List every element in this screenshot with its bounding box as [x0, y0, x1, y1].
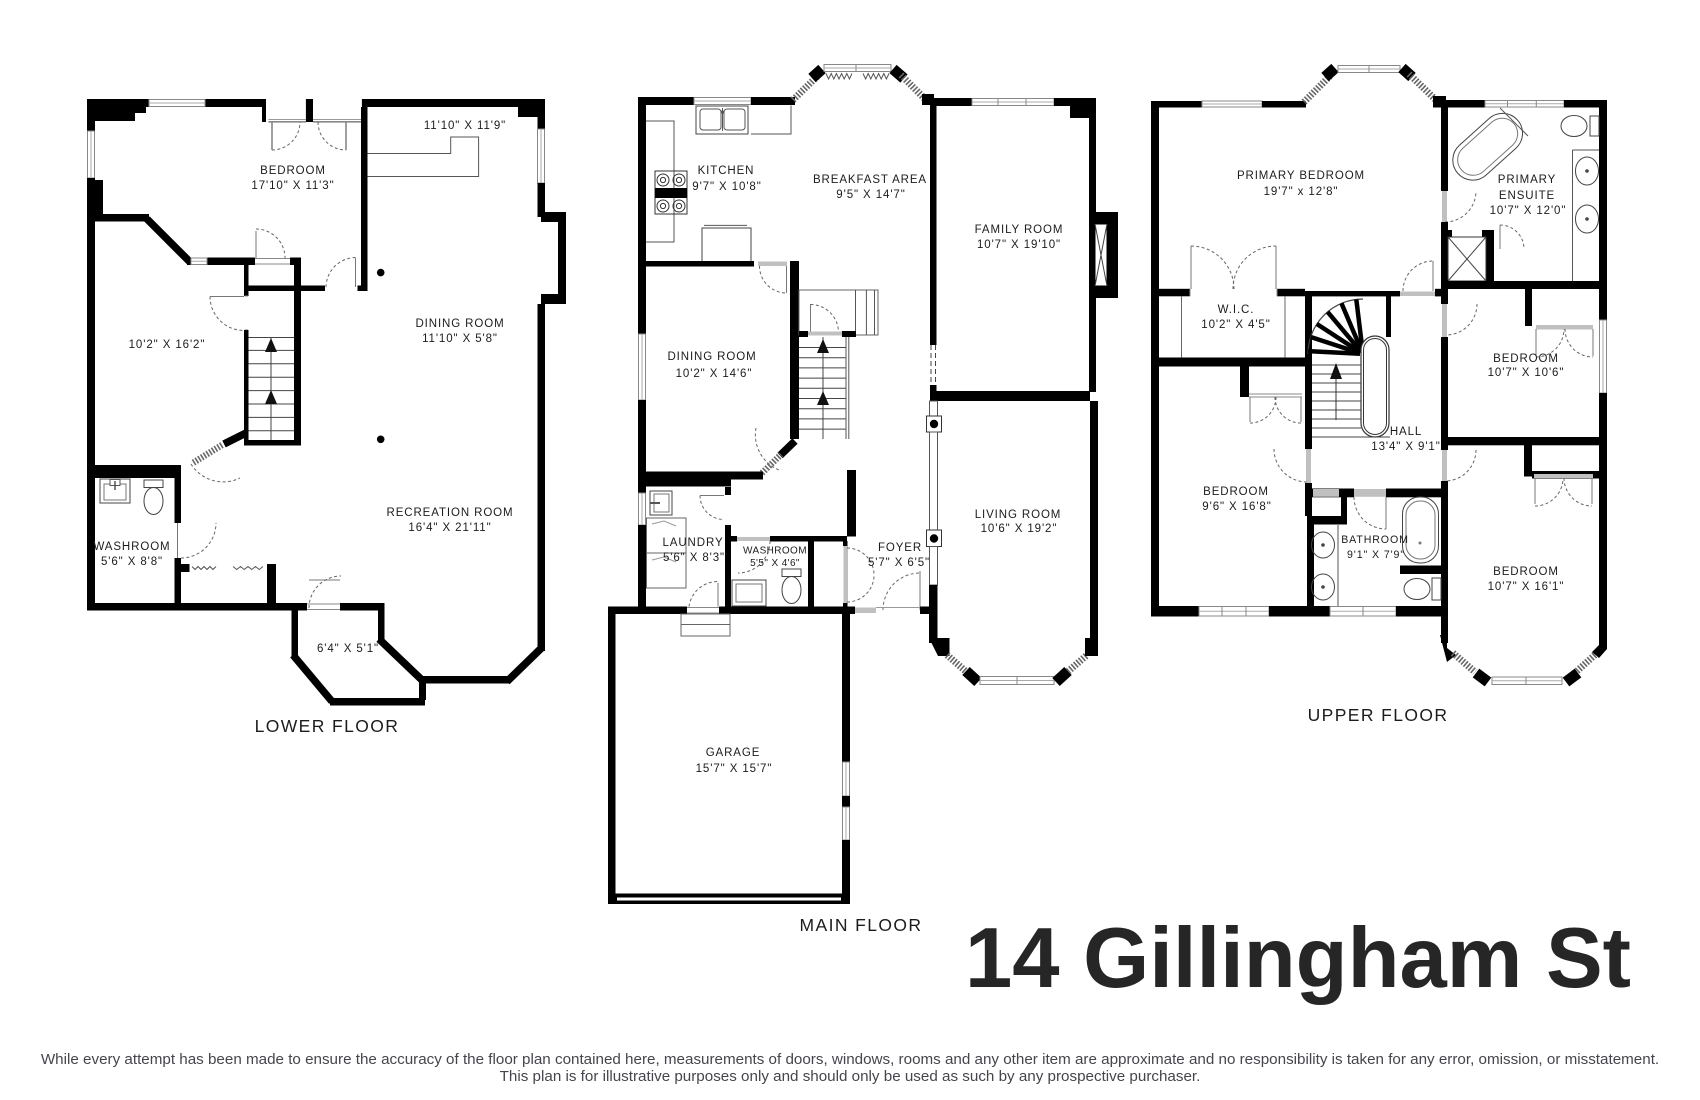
svg-text:RECREATION ROOM: RECREATION ROOM [386, 507, 513, 519]
svg-text:FAMILY ROOM: FAMILY ROOM [975, 224, 1064, 236]
svg-text:UPPER FLOOR: UPPER FLOOR [1308, 705, 1449, 725]
svg-text:GARAGE: GARAGE [706, 747, 761, 759]
svg-text:5'6" X 8'8": 5'6" X 8'8" [101, 556, 163, 568]
svg-text:10'2" X 14'6": 10'2" X 14'6" [676, 368, 753, 380]
svg-text:10'7" X 10'6": 10'7" X 10'6" [1488, 367, 1565, 379]
svg-text:15'7" X 15'7": 15'7" X 15'7" [696, 763, 773, 775]
svg-text:ENSUITE: ENSUITE [1499, 190, 1555, 202]
svg-text:LOWER FLOOR: LOWER FLOOR [255, 716, 400, 736]
svg-text:FOYER: FOYER [878, 542, 922, 554]
svg-text:17'10" X 11'3": 17'10" X 11'3" [251, 180, 334, 192]
svg-text:BEDROOM: BEDROOM [1203, 486, 1269, 498]
svg-text:5'6" X 8'3": 5'6" X 8'3" [663, 552, 725, 564]
svg-text:6'4" X 5'1": 6'4" X 5'1" [317, 643, 379, 655]
svg-text:BEDROOM: BEDROOM [1493, 566, 1559, 578]
svg-text:PRIMARY BEDROOM: PRIMARY BEDROOM [1237, 170, 1365, 182]
svg-text:DINING ROOM: DINING ROOM [415, 318, 504, 330]
svg-text:BATHROOM: BATHROOM [1341, 534, 1409, 546]
svg-text:DINING ROOM: DINING ROOM [667, 351, 756, 363]
svg-text:19'7" x 12'8": 19'7" x 12'8" [1264, 186, 1339, 198]
svg-text:While every attempt has been m: While every attempt has been made to ens… [41, 1051, 1659, 1068]
svg-text:10'7" X 12'0": 10'7" X 12'0" [1490, 205, 1567, 217]
svg-text:PRIMARY: PRIMARY [1498, 174, 1557, 186]
svg-text:MAIN FLOOR: MAIN FLOOR [800, 915, 923, 935]
svg-text:BEDROOM: BEDROOM [260, 165, 326, 177]
svg-text:WASHROOM: WASHROOM [743, 546, 807, 557]
svg-text:LIVING ROOM: LIVING ROOM [975, 509, 1062, 521]
svg-text:5'7" X 6'5": 5'7" X 6'5" [868, 557, 930, 569]
svg-text:13'4" X 9'1": 13'4" X 9'1" [1371, 441, 1440, 453]
svg-text:10'7" X 19'10": 10'7" X 19'10" [977, 239, 1061, 251]
svg-text:16'4" X 21'11": 16'4" X 21'11" [408, 522, 491, 534]
svg-text:LAUNDRY: LAUNDRY [662, 537, 723, 549]
svg-text:5'5" X 4'6": 5'5" X 4'6" [750, 558, 800, 569]
svg-text:BREAKFAST AREA: BREAKFAST AREA [813, 174, 927, 186]
svg-text:10'7" X 16'1": 10'7" X 16'1" [1488, 581, 1565, 593]
svg-text:11'10" X 5'8": 11'10" X 5'8" [422, 333, 498, 345]
svg-text:9'1" X 7'9": 9'1" X 7'9" [1347, 549, 1405, 561]
svg-text:11'10" X 11'9": 11'10" X 11'9" [424, 120, 506, 132]
svg-text:This plan is for illustrative: This plan is for illustrative purposes o… [500, 1068, 1201, 1085]
svg-text:BEDROOM: BEDROOM [1493, 353, 1559, 365]
svg-text:WASHROOM: WASHROOM [93, 541, 170, 553]
svg-text:KITCHEN: KITCHEN [698, 165, 755, 177]
svg-text:10'6" X 19'2": 10'6" X 19'2" [981, 523, 1058, 535]
svg-text:9'6" X 16'8": 9'6" X 16'8" [1202, 501, 1271, 513]
svg-text:W.I.C.: W.I.C. [1218, 304, 1255, 316]
svg-text:14 Gillingham St: 14 Gillingham St [965, 911, 1631, 1006]
svg-text:9'5" X 14'7": 9'5" X 14'7" [836, 189, 905, 201]
svg-text:9'7" X 10'8": 9'7" X 10'8" [692, 181, 761, 193]
svg-text:10'2" X 16'2": 10'2" X 16'2" [129, 339, 206, 351]
svg-text:10'2" X 4'5": 10'2" X 4'5" [1201, 319, 1270, 331]
svg-text:HALL: HALL [1390, 426, 1422, 438]
